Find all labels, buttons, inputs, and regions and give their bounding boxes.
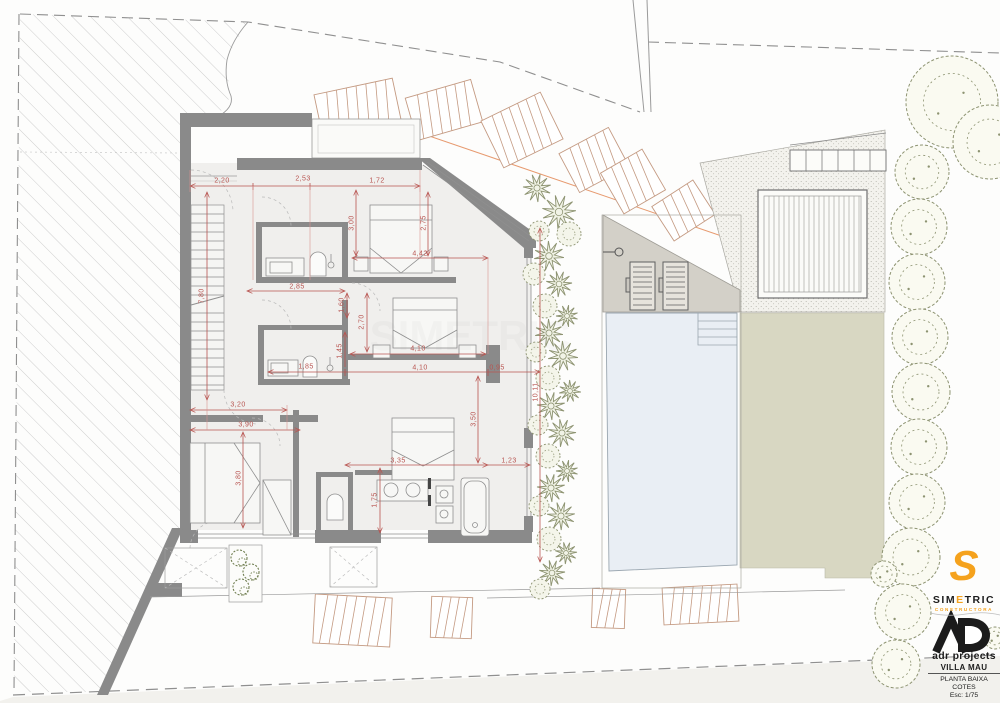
simetric-wordmark: SIMETRIC xyxy=(908,594,1000,606)
louver-bank xyxy=(430,596,472,638)
dimension-label: 2,70 xyxy=(359,314,366,329)
dimension-label: 3,20 xyxy=(230,402,245,409)
site-plan-page: SIMETRIC 2,202,531,723,002,754,422,857,8… xyxy=(0,0,1000,703)
project-title: VILLA MAU xyxy=(908,663,1000,672)
pool xyxy=(606,313,737,571)
dimension-label: 2,85 xyxy=(289,284,304,291)
watermark: SIMETRIC xyxy=(370,312,571,359)
sheet-scale: Esc: 1/75 xyxy=(908,692,1000,700)
dimension-label: 2,53 xyxy=(295,176,310,183)
dimension-label: 1,85 xyxy=(298,364,313,371)
dimension-label: 3,90 xyxy=(238,422,253,429)
dimension-label: 1,45 xyxy=(337,343,344,358)
street-strip xyxy=(0,656,1000,703)
louver-bank xyxy=(481,92,563,168)
dimension-label: 7,80 xyxy=(199,288,206,303)
adr-projects-wordmark: adr projects xyxy=(908,650,1000,662)
dimension-label: 2,75 xyxy=(421,215,428,230)
dimension-label: 3,80 xyxy=(236,470,243,485)
simetric-part2: TRIC xyxy=(965,594,996,606)
dimension-label: 10,11 xyxy=(533,383,540,402)
simetric-accent-letter: E xyxy=(956,594,965,606)
dimension-label: 4,10 xyxy=(412,365,427,372)
dimension-label: 1,72 xyxy=(369,178,384,185)
sheet-name-line1: PLANTA BAIXA xyxy=(908,676,1000,684)
sheet-name-line2: COTES xyxy=(908,684,1000,692)
title-block-divider xyxy=(928,673,1000,674)
dimension-label: 0,95 xyxy=(489,365,504,372)
lawn xyxy=(740,313,884,578)
dimension-label: 2,20 xyxy=(214,178,229,185)
dimension-label: 4,42 xyxy=(412,251,427,258)
dimension-label: 3,50 xyxy=(471,411,478,426)
dimension-label: 3,00 xyxy=(349,215,356,230)
dimension-label: 4,10 xyxy=(410,346,425,353)
dimension-label: 1,75 xyxy=(372,492,379,507)
simetric-subtitle: CONSTRUCTORA xyxy=(908,607,1000,612)
timber-deck xyxy=(758,190,867,298)
dimension-label: 3,35 xyxy=(390,458,405,465)
louver-bank xyxy=(591,588,625,628)
floor-plan-drawing: SIMETRIC xyxy=(0,0,1000,703)
simetric-part1: SIM xyxy=(933,594,956,606)
louver-bank xyxy=(313,594,392,647)
simetric-logo-icon: S xyxy=(906,542,1000,590)
dimension-label: 1,60 xyxy=(339,297,346,312)
dimension-label: 1,23 xyxy=(501,458,516,465)
louver-bank xyxy=(662,584,739,625)
